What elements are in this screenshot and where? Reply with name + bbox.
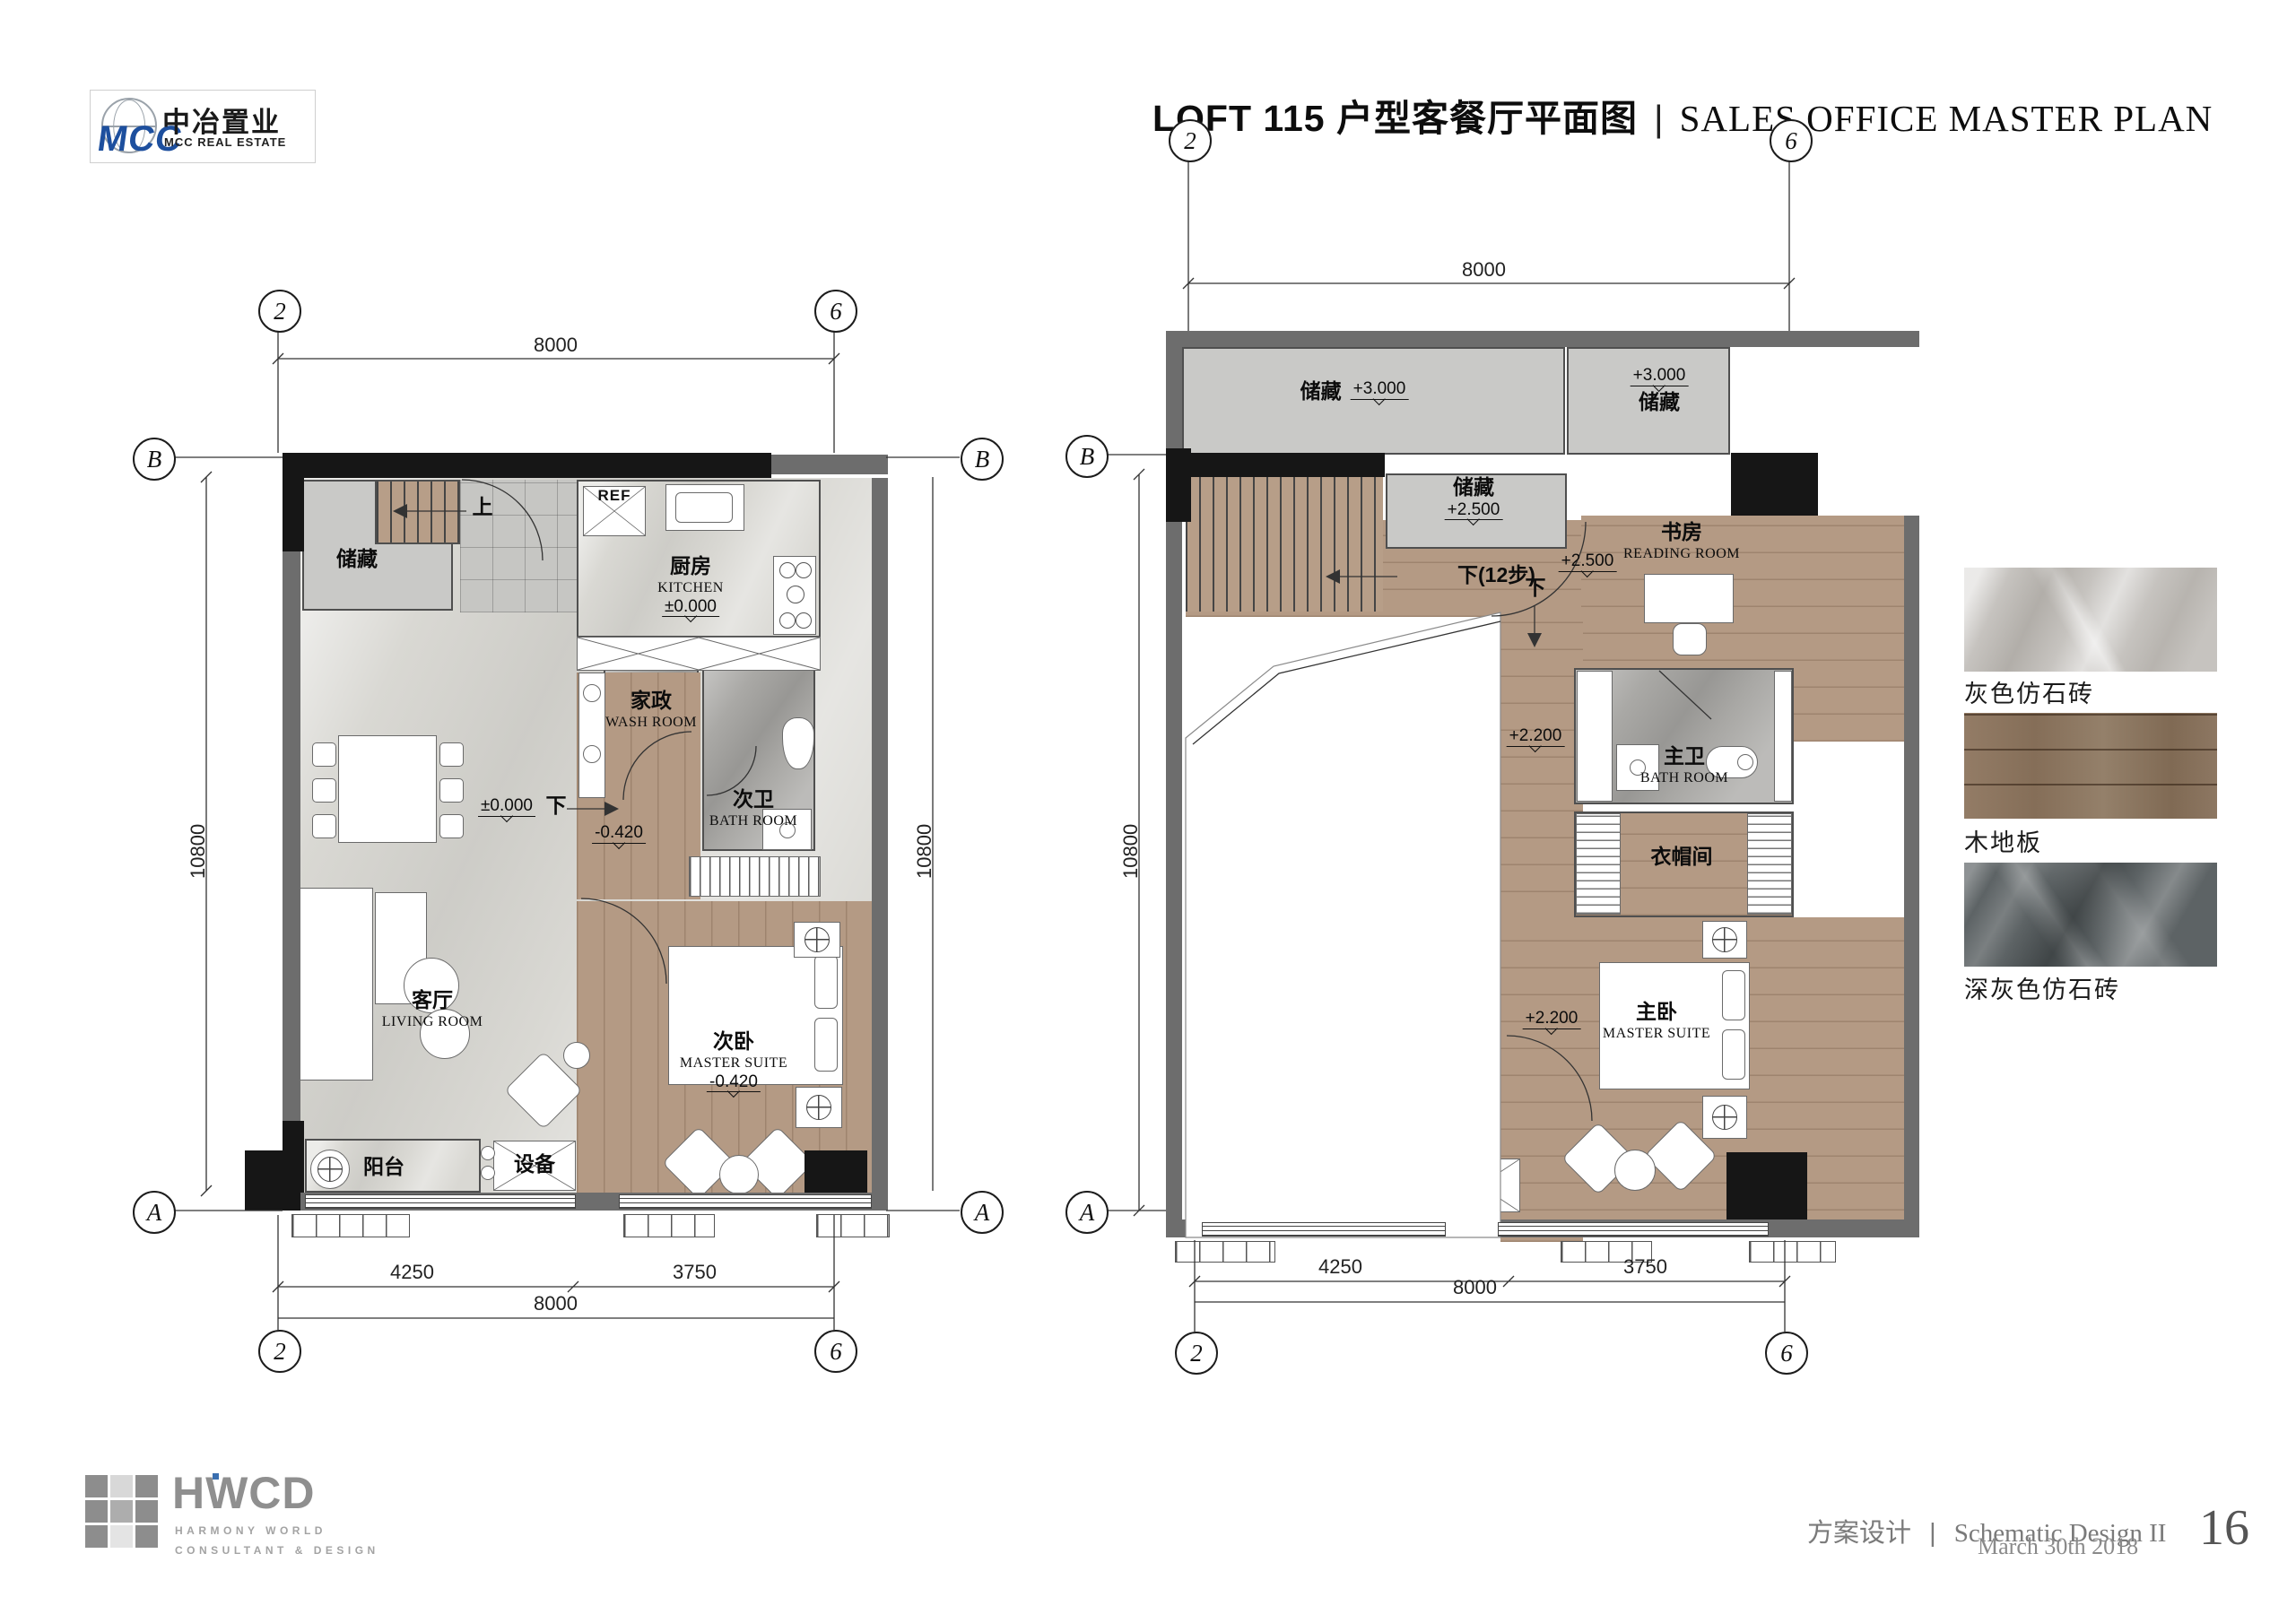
cooktop [773, 556, 816, 635]
grid-label: A [975, 1199, 990, 1227]
label-stair-note: 下(12步) [1457, 563, 1535, 588]
window-sill [305, 1194, 576, 1209]
crosshair-icon [1712, 927, 1737, 952]
room-name-en: MASTER SUITE [1603, 1025, 1710, 1043]
room-name: 储藏 [1445, 475, 1503, 500]
dim-top: 8000 [534, 334, 578, 357]
room-name-en: MASTER SUITE [680, 1055, 787, 1072]
label-kitchen: 厨房 KITCHEN ±0.000 [657, 554, 724, 621]
hwcd-logo-accent [213, 1473, 219, 1480]
bath-cabinet [1577, 671, 1613, 802]
grid-label: 2 [1184, 127, 1196, 155]
footing [1749, 1241, 1836, 1263]
level-mark: +3.000 [1631, 366, 1689, 390]
room-name: 厨房 [657, 554, 724, 579]
material-swatch-dark-gray-tile [1964, 863, 2217, 967]
burner [796, 612, 812, 629]
material-label: 深灰色仿石砖 [1964, 970, 2120, 1005]
room-name-en: BATH ROOM [1640, 769, 1728, 787]
grid-square [135, 1475, 158, 1497]
pillow [1722, 1029, 1745, 1080]
label-equipment: 设备 [514, 1152, 555, 1177]
hwcd-tagline-2: CONSULTANT & DESIGN [175, 1544, 379, 1557]
grid-square [110, 1525, 133, 1548]
dim-left: 10800 [1119, 824, 1143, 879]
wall-column [1726, 1152, 1807, 1219]
column-symbol [794, 922, 840, 958]
column-symbol [1702, 1096, 1747, 1139]
column-symbol [1702, 921, 1747, 959]
grid-marker-6-top: 6 [1770, 119, 1813, 162]
stair-direction: 下 [546, 794, 567, 819]
tub-drain [1737, 754, 1753, 770]
wall-column [1731, 453, 1818, 516]
wall-top [1166, 331, 1919, 347]
footing [1175, 1241, 1275, 1263]
x-mark-icon [578, 638, 820, 670]
wardrobe-rack [1747, 813, 1792, 915]
dim-bottom-1: 4250 [390, 1261, 434, 1284]
material-label: 木地板 [1964, 823, 2042, 858]
room-name: 主卧 [1603, 1000, 1710, 1025]
wall-top-kitchen [771, 455, 888, 474]
label-storage-3: 储藏 +2.500 [1445, 475, 1503, 524]
room-name: 主卫 [1640, 744, 1728, 769]
label-corridor-down: 下 [1526, 576, 1546, 601]
crosshair-icon [317, 1157, 343, 1182]
pillow [1722, 970, 1745, 1020]
presentation-sheet: MCC 中冶置业 MCC REAL ESTATE LOFT 115 户型客餐厅平… [0, 0, 2296, 1623]
level-mark: +2.500 [1559, 551, 1617, 576]
sofa [294, 888, 373, 1081]
label-cloak: 衣帽间 [1651, 845, 1713, 870]
x-mark-icon [1440, 1159, 1519, 1211]
dim-bottom-total: 8000 [1453, 1276, 1497, 1299]
room-name: 家政 [605, 689, 697, 714]
grid-label: B [147, 446, 162, 473]
round-table [719, 1155, 759, 1194]
dining-chair [312, 814, 336, 838]
room-name: 次卫 [709, 787, 797, 812]
grid-marker-6-top: 6 [814, 290, 857, 333]
burner [796, 562, 812, 578]
dim-bottom-2: 3750 [1623, 1255, 1667, 1279]
hwcd-logo-grid [85, 1475, 160, 1549]
dining-table [338, 735, 437, 843]
label-stair-up: 上 [473, 495, 493, 520]
washer-drum [583, 745, 601, 763]
window-sill [619, 1194, 872, 1209]
stair-direction: 上 [473, 495, 493, 520]
grid-marker-B-left: B [133, 438, 176, 481]
grid-marker-6-bottom: 6 [814, 1330, 857, 1373]
dim-bottom-2: 3750 [673, 1261, 717, 1284]
label-hall-level: -0.420 [592, 823, 646, 847]
grid-square [135, 1500, 158, 1523]
floor-drain-symbol [310, 1150, 350, 1189]
phase-separator: | [1929, 1519, 1936, 1548]
label-balcony: 阳台 [363, 1155, 404, 1180]
grid-label: 6 [1780, 1340, 1793, 1367]
window-sill [1498, 1222, 1769, 1237]
mcc-logo-cn: 中冶置业 [162, 100, 281, 140]
page-number: 16 [2199, 1499, 2249, 1557]
room-name-en: BATH ROOM [709, 812, 797, 830]
dim-top: 8000 [1462, 258, 1506, 282]
label-storage: 储藏 [336, 547, 378, 572]
grid-marker-A-right: A [961, 1191, 1004, 1234]
level-mark: +3.000 [1351, 379, 1409, 404]
wall-column [245, 1150, 296, 1211]
room-name: 储藏 [336, 547, 378, 572]
grid-marker-2-bottom: 2 [258, 1330, 301, 1373]
label-living: 客厅 LIVING ROOM [382, 988, 483, 1031]
grid-square [85, 1475, 108, 1497]
mcc-logo-en: MCC REAL ESTATE [164, 135, 286, 149]
grid-marker-A-left: A [133, 1191, 176, 1234]
grid-marker-A-left: A [1065, 1191, 1109, 1234]
level-mark: +2.200 [1523, 1009, 1581, 1033]
desk-chair [1673, 623, 1707, 655]
equipment-box [1439, 1159, 1520, 1212]
desk [1644, 574, 1734, 623]
stair-direction: 下 [1526, 576, 1546, 601]
level-mark: ±0.000 [657, 597, 724, 621]
drain-symbol [481, 1146, 495, 1160]
grid-square [85, 1525, 108, 1548]
dining-chair [312, 778, 336, 803]
wardrobe-unit [689, 856, 821, 897]
wall-top [283, 453, 771, 478]
level-mark: +2.200 [1507, 726, 1565, 751]
hwcd-tagline-1: HARMONY WORLD [175, 1524, 326, 1537]
crosshair-icon [806, 1095, 831, 1120]
pillow [814, 955, 838, 1009]
floor-plan-lower-level: 2 6 B B A A 2 6 8000 10800 10800 4250 37… [135, 170, 996, 1426]
column-symbol [796, 1087, 842, 1128]
grid-label: 6 [830, 1338, 842, 1366]
room-name-en: LIVING ROOM [382, 1013, 483, 1031]
pillow [814, 1018, 838, 1072]
footing [291, 1214, 410, 1237]
level-mark: +2.500 [1445, 500, 1503, 525]
level-mark: -0.420 [592, 823, 646, 847]
label-bath: 次卫 BATH ROOM [709, 787, 797, 830]
material-swatch-gray-tile [1964, 568, 2217, 672]
grid-label: A [1080, 1199, 1095, 1227]
label-suite: 次卧 MASTER SUITE -0.420 [680, 1029, 787, 1096]
room-name: 衣帽间 [1651, 845, 1713, 870]
room-name-en: READING ROOM [1623, 545, 1740, 563]
grid-label: 6 [830, 298, 842, 325]
dim-bottom-1: 4250 [1318, 1255, 1362, 1279]
burner [779, 562, 796, 578]
grid-label: A [147, 1199, 162, 1227]
phase-chinese: 方案设计 [1807, 1519, 1911, 1548]
room-name: 设备 [514, 1152, 555, 1177]
room-name: 书房 [1623, 520, 1740, 545]
grid-square [110, 1475, 133, 1497]
material-label: 灰色仿石砖 [1964, 674, 2094, 709]
wall-left [283, 478, 300, 1211]
floor-plan-upper-level: 2 6 B A 2 6 8000 10800 4250 3750 8000 [1031, 117, 1937, 1426]
level-mark: -0.420 [680, 1072, 787, 1097]
grid-square [135, 1525, 158, 1548]
dining-chair [439, 814, 464, 838]
room-name: 次卧 [680, 1029, 787, 1055]
grid-marker-B-right: B [961, 438, 1004, 481]
grid-marker-2-top: 2 [1169, 119, 1212, 162]
stairs-down [1186, 477, 1383, 612]
label-reading: 书房 READING ROOM [1623, 520, 1740, 563]
level-mark: ±0.000 [478, 796, 535, 820]
washer-drum [583, 684, 601, 702]
dining-chair [439, 742, 464, 767]
room-name: 阳台 [363, 1155, 404, 1180]
label-storage-1: 储藏 +3.000 [1300, 379, 1409, 404]
drain-symbol [1426, 1166, 1440, 1180]
wall-right [872, 478, 888, 1211]
window-sill [1202, 1222, 1446, 1237]
hwcd-logo-text: HWCD [172, 1467, 316, 1519]
washer-column [578, 673, 605, 798]
room-name: 储藏 [1631, 390, 1689, 415]
material-swatch-wood-floor [1964, 713, 2217, 819]
room-name: 储藏 [1300, 379, 1342, 404]
label-living-level: ±0.000 [478, 796, 535, 820]
ref-label: REF [598, 487, 631, 505]
footing [623, 1214, 715, 1237]
sink-basin [675, 492, 733, 523]
grid-square [110, 1500, 133, 1523]
grid-label: 2 [1190, 1340, 1203, 1367]
refrigerator: REF [583, 486, 646, 536]
stair-direction: 下(12步) [1457, 563, 1535, 588]
shower-niche [1774, 671, 1792, 802]
label-suite: 主卧 MASTER SUITE [1603, 1000, 1710, 1043]
grid-label: B [975, 446, 990, 473]
wardrobe-rack [1576, 813, 1621, 915]
grid-marker-2-top: 2 [258, 290, 301, 333]
dim-left: 10800 [187, 824, 210, 879]
side-table [563, 1042, 590, 1069]
burner [787, 586, 804, 603]
label-bath: 主卫 BATH ROOM [1640, 744, 1728, 787]
stairs-up [375, 480, 461, 544]
grid-label: 2 [274, 1338, 286, 1366]
room-name: 客厅 [382, 988, 483, 1013]
label-reading-level: +2.500 [1559, 551, 1617, 576]
grid-marker-2-bottom: 2 [1175, 1332, 1218, 1375]
label-suite-level: +2.200 [1523, 1009, 1581, 1033]
grid-label: 6 [1785, 127, 1797, 155]
wall-column [283, 453, 304, 551]
room-name-en: KITCHEN [657, 579, 724, 597]
grid-label: 2 [274, 298, 286, 325]
room-name-en: WASH ROOM [605, 714, 697, 732]
label-storage-2: +3.000 储藏 [1631, 366, 1689, 414]
kitchen-sink [665, 484, 744, 531]
sheet-date: March 30th 2018 [1978, 1533, 2138, 1560]
kitchen-cabinet [577, 637, 821, 671]
mcc-logo: MCC 中冶置业 MCC REAL ESTATE [90, 90, 316, 163]
crosshair-icon [804, 927, 830, 952]
label-corridor-level: +2.200 [1507, 726, 1565, 751]
grid-marker-B-left: B [1065, 435, 1109, 478]
grid-label: B [1080, 443, 1095, 471]
footing [816, 1214, 890, 1237]
drain-symbol [481, 1166, 495, 1180]
label-hall-down: 下 [546, 794, 567, 819]
dining-chair [439, 778, 464, 803]
grid-square [85, 1500, 108, 1523]
label-wash: 家政 WASH ROOM [605, 689, 697, 732]
dim-right: 10800 [913, 824, 936, 879]
grid-marker-6-bottom: 6 [1765, 1332, 1808, 1375]
wall-beam [1186, 453, 1385, 477]
dim-bottom-total: 8000 [534, 1292, 578, 1315]
wall-right [1904, 516, 1919, 1237]
burner [779, 612, 796, 629]
round-table [1614, 1150, 1656, 1191]
crosshair-icon [1712, 1105, 1737, 1130]
dining-chair [312, 742, 336, 767]
